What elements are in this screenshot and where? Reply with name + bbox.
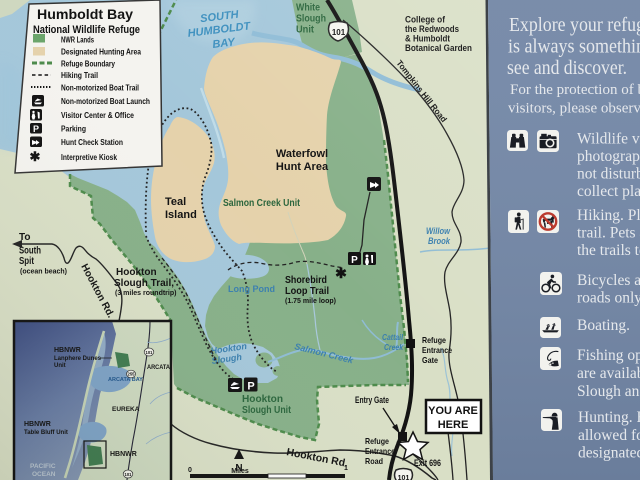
svg-text:are available a: are available a	[577, 365, 640, 382]
svg-text:allowed for wa: allowed for wa	[578, 427, 640, 444]
svg-text:roads only.: roads only.	[577, 290, 640, 307]
svg-text:designated are: designated are	[578, 445, 640, 462]
svg-text:Hiking. Please: Hiking. Please	[577, 207, 640, 224]
svg-text:trail. Pets are a: trail. Pets are a	[577, 225, 640, 242]
svg-text:Explore your refug: Explore your refug	[509, 14, 640, 36]
svg-text:Boating.: Boating.	[577, 317, 630, 334]
svg-text:photography. P: photography. P	[577, 148, 640, 165]
svg-text:Slough and Sal: Slough and Sal	[577, 383, 640, 400]
svg-text:not disturb wil: not disturb wil	[577, 166, 640, 183]
svg-text:see and discover.: see and discover.	[507, 57, 627, 79]
svg-text:Fishing opport: Fishing opport	[577, 347, 640, 364]
svg-text:collect plants.: collect plants.	[577, 183, 640, 200]
svg-text:For the protection of bo: For the protection of bo	[510, 82, 640, 98]
svg-text:the trails to pro: the trails to pro	[577, 242, 640, 259]
svg-text:is always somethin: is always somethin	[508, 36, 640, 58]
svg-text:Hunting. Fall h: Hunting. Fall h	[578, 409, 640, 426]
svg-text:visitors, please observe: visitors, please observe	[508, 101, 640, 117]
svg-text:Wildlife viewin: Wildlife viewin	[577, 131, 640, 148]
svg-text:Bicycles allowe: Bicycles allowe	[577, 272, 640, 289]
